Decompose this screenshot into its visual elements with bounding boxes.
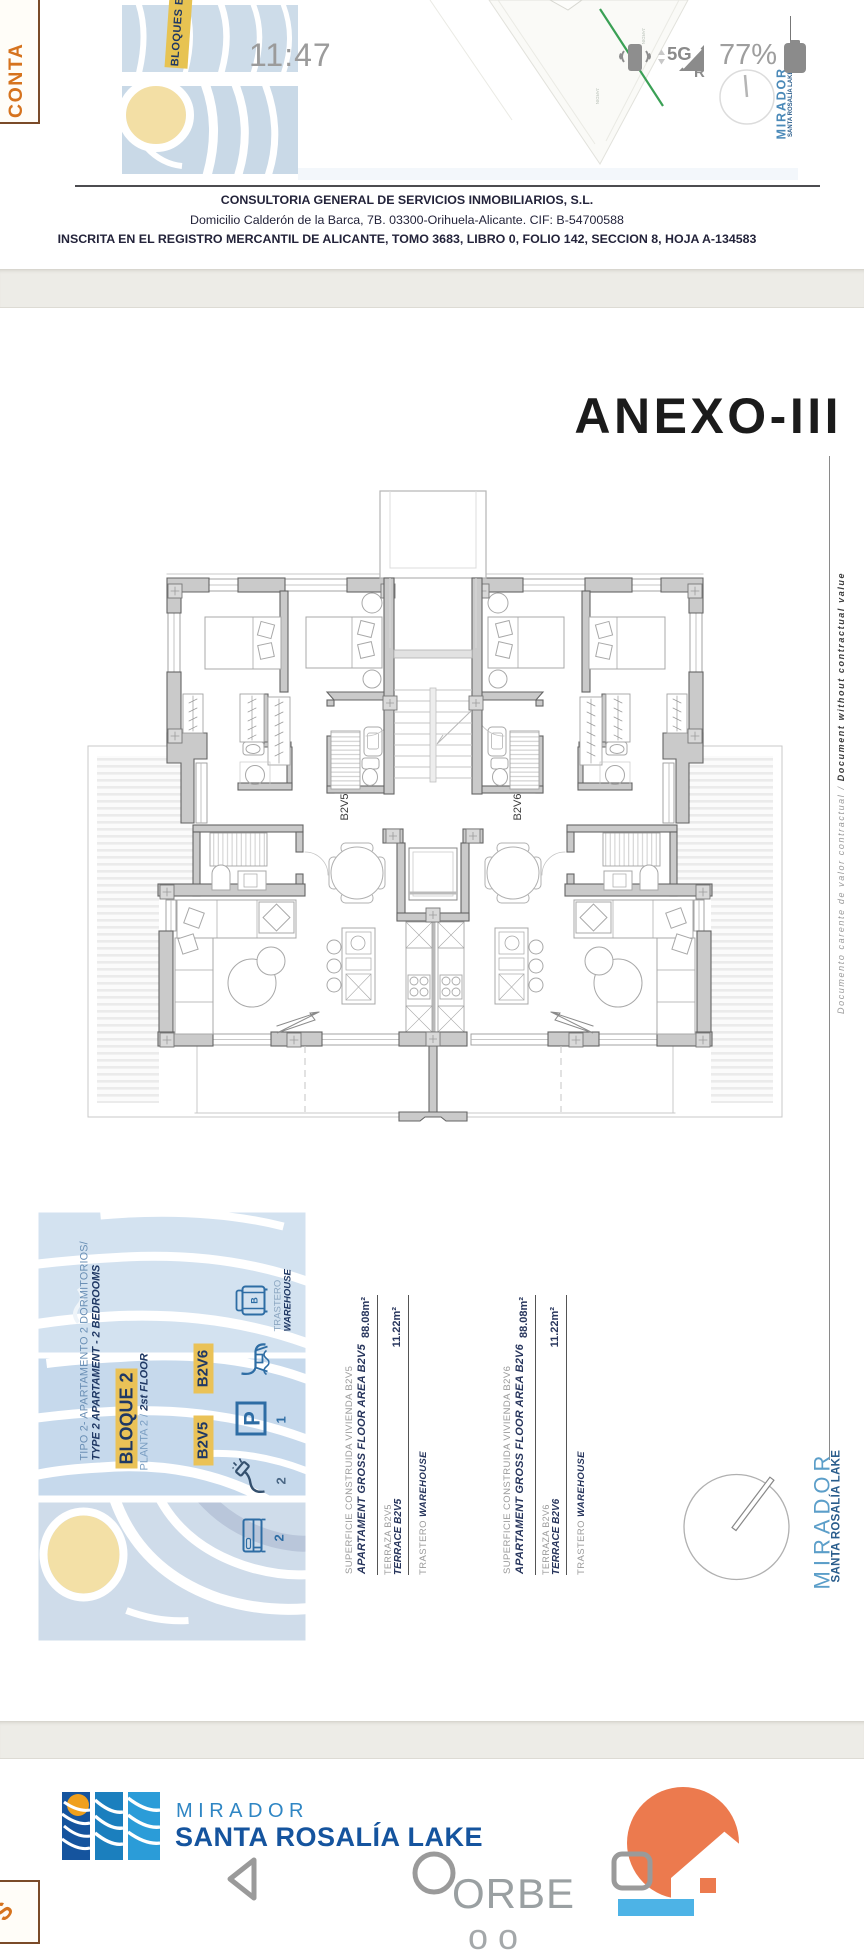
svg-text:5G: 5G: [667, 43, 692, 64]
svg-text:JARDIN: JARDIN: [595, 88, 600, 104]
svg-text:B2V5: B2V5: [339, 794, 351, 821]
svg-text:B: B: [249, 1296, 259, 1303]
svg-text:B2V6: B2V6: [512, 794, 524, 821]
svg-text:P: P: [239, 1411, 264, 1426]
svg-text:R: R: [694, 64, 705, 78]
